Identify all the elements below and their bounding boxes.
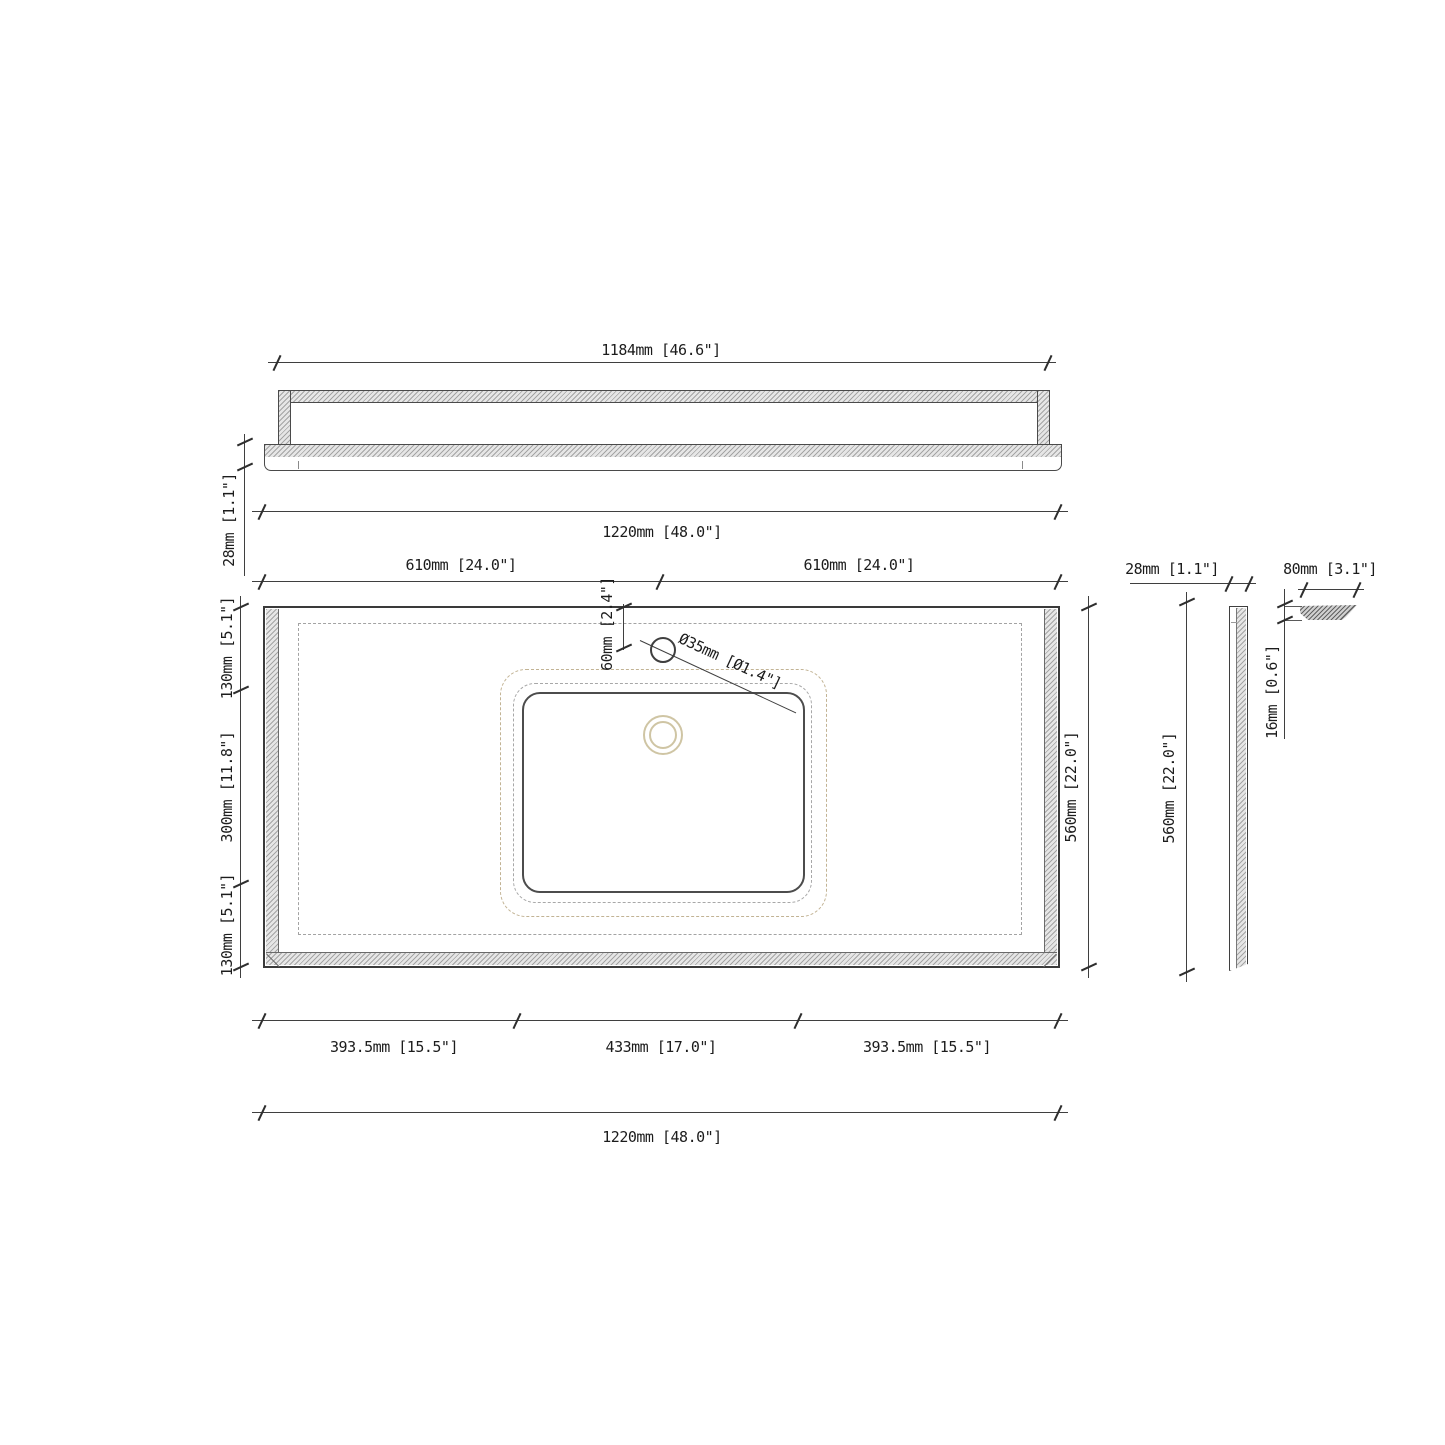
dim-label-side-depth: 560mm [22.0"] xyxy=(1160,733,1178,844)
ext-line xyxy=(1284,606,1302,607)
dim-label-side-thickness: 28mm [1.1"] xyxy=(1125,560,1219,578)
drain-inner-circle xyxy=(649,721,677,749)
dim-line-plan-left xyxy=(240,596,241,978)
dim-tick xyxy=(656,574,665,590)
plan-bottom-edge-band xyxy=(266,952,1057,965)
dim-line-backsplash-thickness xyxy=(1284,589,1285,739)
dim-line-backsplash-width xyxy=(268,362,1056,363)
dim-label-backsplash-width: 1184mm [46.6"] xyxy=(601,341,720,359)
dim-tick xyxy=(794,1013,803,1029)
dim-tick xyxy=(1300,582,1309,598)
dim-tick xyxy=(258,504,267,520)
dim-line-faucet-offset xyxy=(623,604,624,650)
dim-tick xyxy=(237,463,253,472)
slab-joint-mark xyxy=(1022,461,1023,469)
dim-tick xyxy=(1245,576,1254,592)
slab-joint-mark xyxy=(298,461,299,469)
plan-right-edge-band xyxy=(1044,609,1057,965)
dim-line-plan-depth xyxy=(1088,596,1089,978)
plan-left-edge-band xyxy=(266,609,279,965)
dim-label-edge-top: 130mm [5.1"] xyxy=(218,597,236,699)
technical-drawing-canvas: 1184mm [46.6"] 28mm [1.1"] 1220mm [48.0"… xyxy=(0,0,1445,1445)
dim-label-edge-bottom: 130mm [5.1"] xyxy=(218,874,236,976)
backsplash-left-edge xyxy=(278,390,291,449)
dim-tick xyxy=(258,1105,267,1121)
dim-tick xyxy=(1054,1013,1063,1029)
dim-tick xyxy=(1044,355,1053,371)
dim-tick xyxy=(1179,968,1195,977)
side-section-seam xyxy=(1231,622,1237,623)
dim-label-overall-width-bottom: 1220mm [48.0"] xyxy=(602,1128,721,1146)
dim-label-sink-right-offset: 393.5mm [15.5"] xyxy=(863,1038,991,1056)
dim-label-half-width-right: 610mm [24.0"] xyxy=(804,556,915,574)
dim-line-overall-width-top xyxy=(252,511,1068,512)
dim-tick xyxy=(1054,574,1063,590)
dim-label-front-thickness: 28mm [1.1"] xyxy=(220,473,238,567)
plan-view xyxy=(263,606,1060,968)
dim-tick xyxy=(1081,603,1097,612)
dim-line-front-thickness xyxy=(244,434,245,576)
backsplash-right-edge xyxy=(1037,390,1050,449)
side-section-view xyxy=(1229,606,1248,971)
slab-front-face xyxy=(264,457,1062,471)
dim-tick xyxy=(1225,576,1234,592)
dim-label-overall-width-top: 1220mm [48.0"] xyxy=(602,523,721,541)
backsplash-profile-view xyxy=(1300,605,1357,621)
dim-line-side-depth xyxy=(1186,592,1187,982)
dim-line-overall-width-bottom xyxy=(252,1112,1068,1113)
dim-label-backsplash-height: 80mm [3.1"] xyxy=(1283,560,1377,578)
dim-tick xyxy=(258,1013,267,1029)
side-section-hatch xyxy=(1236,608,1246,969)
dim-line-backsplash-height xyxy=(1298,589,1364,590)
dim-label-sink-depth: 300mm [11.8"] xyxy=(218,732,236,843)
dim-label-sink-width: 433mm [17.0"] xyxy=(606,1038,717,1056)
dim-line-side-thickness xyxy=(1130,583,1256,584)
dim-label-plan-depth: 560mm [22.0"] xyxy=(1062,732,1080,843)
dim-line-sink-position xyxy=(252,1020,1068,1021)
front-elevation-slab xyxy=(264,444,1060,470)
dim-label-sink-left-offset: 393.5mm [15.5"] xyxy=(330,1038,458,1056)
dim-tick xyxy=(237,438,253,447)
front-elevation-backsplash xyxy=(278,390,1048,447)
dim-tick xyxy=(1179,598,1195,607)
dim-label-backsplash-thickness: 16mm [0.6"] xyxy=(1263,645,1281,739)
dim-tick xyxy=(1277,600,1293,609)
dim-tick xyxy=(1081,963,1097,972)
dim-tick xyxy=(1353,582,1362,598)
dim-tick xyxy=(1054,504,1063,520)
dim-tick xyxy=(513,1013,522,1029)
dim-label-faucet-offset: 60mm [2.4"] xyxy=(598,577,616,671)
backsplash-top-edge xyxy=(278,390,1050,403)
dim-tick xyxy=(258,574,267,590)
dim-tick xyxy=(273,355,282,371)
dim-label-half-width-left: 610mm [24.0"] xyxy=(406,556,517,574)
dim-tick xyxy=(1054,1105,1063,1121)
